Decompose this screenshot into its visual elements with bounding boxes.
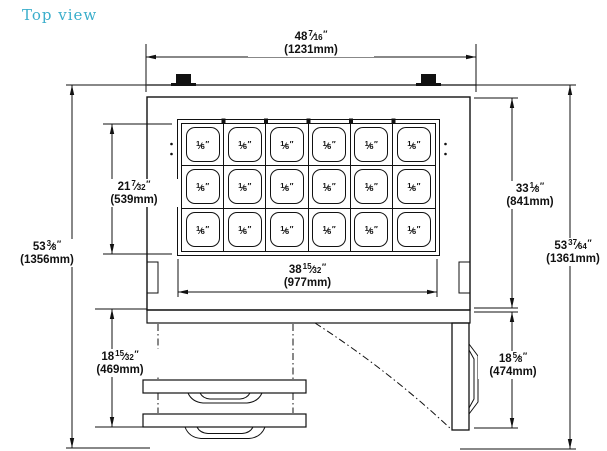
pan-cell: 16″ [224,209,266,251]
hinge-right-icon [416,74,441,86]
pan-size-label: 16″ [280,139,293,151]
pan-one-sixth: 16″ [312,212,346,247]
pan-size-label: 16″ [322,181,335,193]
pan-one-sixth: 16″ [312,169,346,204]
pan-cell: 16″ [266,166,308,208]
hinge-left-icon [171,74,196,86]
pan-cell: 16″ [266,209,308,251]
pan-cell: 16″ [351,209,393,251]
pan-one-sixth: 16″ [354,169,388,204]
pan-one-sixth: 16″ [186,169,220,204]
pan-cell: 16″ [224,124,266,166]
pan-cell: 16″ [224,166,266,208]
dim-label-top-width: 48716″ (1231mm) [248,29,374,57]
pan-cell: 16″ [393,166,435,208]
pan-cell: 16″ [393,124,435,166]
pan-one-sixth: 16″ [228,127,262,162]
door-swing-arc [315,323,452,430]
pan-size-label: 16″ [407,224,420,236]
door-handle [469,344,478,414]
dim-label-right-outer: 533764″ (1361mm) [539,238,607,266]
pan-size-label: 16″ [407,181,420,193]
pan-cell: 16″ [182,209,224,251]
pan-size-label: 16″ [196,224,209,236]
pan-size-label: 16″ [280,181,293,193]
pan-one-sixth: 16″ [228,212,262,247]
pan-cell: 16″ [266,124,308,166]
pan-size-label: 16″ [365,224,378,236]
pan-size-label: 16″ [238,181,251,193]
pan-size-label: 16″ [238,224,251,236]
pan-cell: 16″ [309,124,351,166]
pan-size-label: 16″ [196,181,209,193]
dim-label-right-inner: 3318″ (841mm) [494,181,566,209]
pan-cell: 16″ [182,124,224,166]
drawer-1-handle [188,393,262,403]
pan-one-sixth: 16″ [228,169,262,204]
pan-one-sixth: 16″ [270,169,304,204]
pan-grid: 16″ 16″ 16″ 16″ 16″ 16″ [181,123,436,252]
dim-label-bottom-center: 381532″ (977mm) [245,262,370,290]
pan-size-label: 16″ [365,139,378,151]
pan-one-sixth: 16″ [186,212,220,247]
pan-size-label: 16″ [407,139,420,151]
pan-cell: 16″ [351,166,393,208]
pan-size-label: 16″ [196,139,209,151]
pan-one-sixth: 16″ [270,127,304,162]
pan-size-label: 16″ [322,224,335,236]
pan-one-sixth: 16″ [270,212,304,247]
pan-size-label: 16″ [365,181,378,193]
pan-one-sixth: 16″ [397,169,431,204]
pan-size-label: 16″ [238,139,251,151]
pan-cell: 16″ [309,209,351,251]
dim-label-left-inner: 21732″ (539mm) [90,179,178,207]
side-step-right [459,262,470,293]
pan-cell: 16″ [182,166,224,208]
technical-drawing-page: 16″ 16″ 16″ 16″ 16″ 16″ [0,0,607,451]
side-step-left [147,262,158,293]
drawer-2-handle [185,427,265,439]
pan-cell: 16″ [351,124,393,166]
pan-one-sixth: 16″ [397,127,431,162]
page-title: Top view [22,6,97,24]
pan-one-sixth: 16″ [397,212,431,247]
dim-label-left-outer: 5338″ (1356mm) [3,239,91,267]
pan-one-sixth: 16″ [186,127,220,162]
dim-label-bottom-left: 181532″ (469mm) [76,349,164,377]
pan-one-sixth: 16″ [354,127,388,162]
pan-cell: 16″ [309,166,351,208]
dim-label-bottom-right: 1858″ (474mm) [478,351,548,379]
door-open-edge [452,323,469,430]
pan-one-sixth: 16″ [354,212,388,247]
front-rail-band [147,310,470,323]
pan-one-sixth: 16″ [312,127,346,162]
pan-size-label: 16″ [322,139,335,151]
drawer-1-front [143,380,306,393]
pan-size-label: 16″ [280,224,293,236]
drawer-slide-lines [158,324,293,413]
drawer-2-front [143,414,306,427]
pan-cell: 16″ [393,209,435,251]
